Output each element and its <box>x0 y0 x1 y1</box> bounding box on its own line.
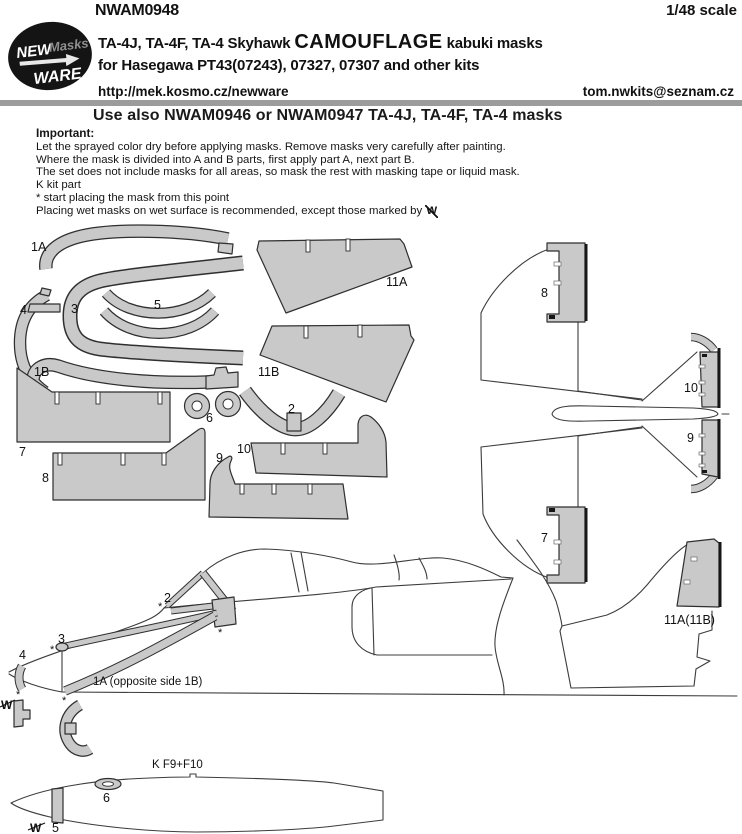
part-label-2: 2 <box>288 402 295 416</box>
part-label-7: 7 <box>19 445 26 459</box>
side-loose-masks <box>14 700 90 751</box>
wet-warning-icon: W <box>425 205 438 218</box>
start-point-marker: * <box>50 644 55 656</box>
newware-logo: NEW Masks WARE <box>4 12 99 97</box>
tank-label-6: 6 <box>103 791 110 805</box>
plan-label-9: 9 <box>687 431 694 445</box>
part-label-5: 5 <box>154 298 161 312</box>
title-highlight: CAMOUFLAGE <box>294 31 442 53</box>
part-label-3: 3 <box>71 302 78 316</box>
part-label-6: 6 <box>206 411 213 425</box>
part-1b-mask <box>33 365 238 389</box>
part-label-11a: 11A <box>386 275 408 289</box>
part-label-1a: 1A <box>31 240 47 254</box>
instruction-line: K kit part <box>36 179 81 191</box>
tank-label-5: 5 <box>52 821 59 834</box>
instruction-line: The set does not include masks for all a… <box>36 166 520 178</box>
plan-label-10: 10 <box>684 381 698 395</box>
instruction-line: Placing wet masks on wet surface is reco… <box>36 205 422 217</box>
plan-mask-7 <box>547 507 586 583</box>
side-note: 1A (opposite side 1B) <box>93 676 202 688</box>
part-label-10: 10 <box>237 442 251 456</box>
side-label-3: 3 <box>58 632 65 646</box>
side-view: 2 3 4 1A (opposite side 1B) * * * * * W <box>0 549 737 751</box>
plan-mask-10 <box>691 337 719 408</box>
side-canopy-masks <box>19 573 236 691</box>
product-code: NWAM0948 <box>95 2 179 20</box>
fin-view: 11A(11B) <box>517 539 720 688</box>
mask-sheet: 1A 4 3 5 1B 7 8 6 2 10 9 11A 11B <box>17 231 414 519</box>
svg-text:W: W <box>1 698 13 712</box>
instruction-line: Let the sprayed color dry before applyin… <box>36 141 506 153</box>
part-label-1b: 1B <box>34 365 49 379</box>
part-label-11b: 11B <box>258 365 279 379</box>
plan-view: 8 10 9 7 <box>481 243 729 583</box>
part-11b-mask <box>260 325 414 402</box>
instruction-line: Where the mask is divided into A and B p… <box>36 154 415 166</box>
plan-mask-9 <box>691 419 719 489</box>
side-label-4: 4 <box>19 648 26 662</box>
start-point-marker: * <box>218 627 223 639</box>
instruction-sheet: 1A 4 3 5 1B 7 8 6 2 10 9 11A 11B <box>0 0 742 834</box>
instructions-heading: Important: <box>36 126 94 140</box>
diagram-canvas: 1A 4 3 5 1B 7 8 6 2 10 9 11A 11B <box>0 0 742 834</box>
wet-warning-icon: W <box>0 698 15 712</box>
product-title: TA-4J, TA-4F, TA-4 Skyhawk CAMOUFLAGE ka… <box>98 31 543 54</box>
fin-label-11ab: 11A(11B) <box>664 613 715 627</box>
part-label-8: 8 <box>42 471 49 485</box>
start-point-marker: * <box>158 601 163 613</box>
divider-bar <box>0 100 742 106</box>
title-suffix: kabuki masks <box>447 35 543 52</box>
side-label-2: 2 <box>164 591 171 605</box>
title-prefix: TA-4J, TA-4F, TA-4 Skyhawk <box>98 35 290 52</box>
start-point-marker: * <box>16 689 21 701</box>
plan-label-8: 8 <box>541 286 548 300</box>
start-point-marker: * <box>62 695 67 707</box>
plan-mask-8 <box>547 243 586 322</box>
fin-mask-11ab <box>677 539 720 607</box>
wet-warning-icon: W <box>28 821 45 834</box>
tank-mask-5 <box>52 788 63 823</box>
part-label-4: 4 <box>20 303 27 317</box>
tank-kit-note: K F9+F10 <box>152 759 203 771</box>
important-instructions: Important: Let the sprayed color dry bef… <box>36 127 716 218</box>
instruction-line: * start placing the mask from this point <box>36 192 229 204</box>
email-address[interactable]: tom.nwkits@seznam.cz <box>583 84 734 99</box>
scale-label: 1/48 scale <box>666 2 737 19</box>
tank-mask-6 <box>95 779 121 790</box>
tank-view: K F9+F10 6 5 W <box>11 759 383 834</box>
cross-reference-note: Use also NWAM0946 or NWAM0947 TA-4J, TA-… <box>93 107 563 125</box>
website-link[interactable]: http://mek.kosmo.cz/newware <box>98 84 289 99</box>
svg-text:W: W <box>30 821 42 834</box>
kit-compatibility: for Hasegawa PT43(07243), 07327, 07307 a… <box>98 57 479 74</box>
part-label-9: 9 <box>216 451 223 465</box>
plan-label-7: 7 <box>541 531 548 545</box>
